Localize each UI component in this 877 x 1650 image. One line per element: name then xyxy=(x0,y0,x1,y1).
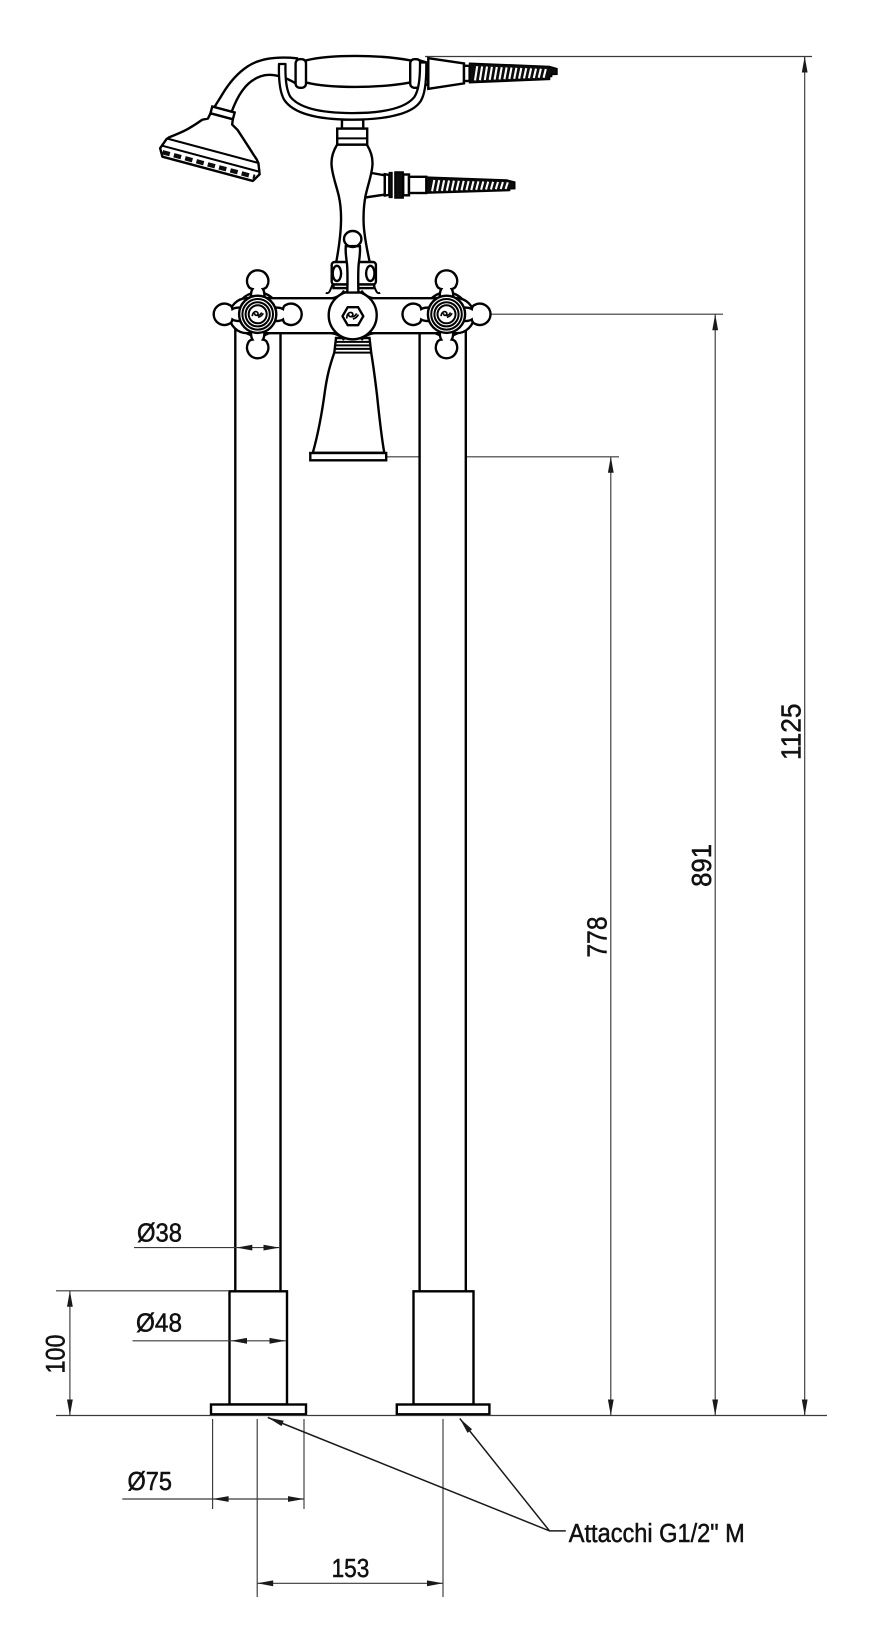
svg-text:1125: 1125 xyxy=(776,704,807,761)
svg-text:Ø75: Ø75 xyxy=(128,1466,173,1496)
svg-text:Attacchi G1/2" M: Attacchi G1/2" M xyxy=(569,1520,745,1548)
svg-text:153: 153 xyxy=(332,1553,370,1583)
svg-text:778: 778 xyxy=(581,917,612,958)
svg-text:891: 891 xyxy=(686,844,717,887)
svg-text:100: 100 xyxy=(40,1335,70,1374)
svg-text:Ø38: Ø38 xyxy=(137,1218,182,1248)
svg-text:Ø48: Ø48 xyxy=(136,1308,182,1338)
